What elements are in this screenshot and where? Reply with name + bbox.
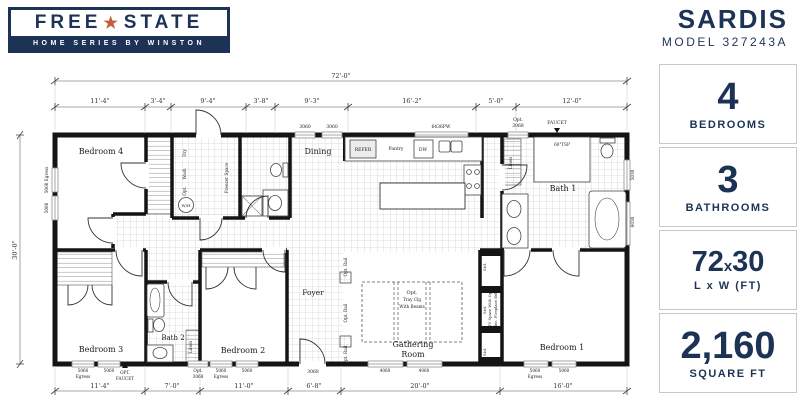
room-label-bath2: Bath 2 xyxy=(161,334,184,342)
opt-faucet-label-1: OPT. xyxy=(120,370,130,375)
room-label-bedroom3: Bedroom 3 xyxy=(79,345,123,354)
tsp-label: 60"TSP xyxy=(554,142,570,147)
bedrooms-value: 4 xyxy=(717,78,738,116)
column xyxy=(340,336,351,347)
svg-text:7'-0": 7'-0" xyxy=(164,382,179,390)
room-label-gathering-2: Room xyxy=(401,350,425,359)
opt-door-top-2: 3068 xyxy=(512,123,524,129)
room-label-bath1: Bath 1 xyxy=(550,184,577,193)
vanity-sink xyxy=(507,201,521,218)
opt-rail-label: Opt. Rail xyxy=(343,303,348,323)
logo-text-free: FREE xyxy=(35,12,102,34)
toilet-bowl xyxy=(271,164,282,177)
std-label: Std. xyxy=(482,348,487,356)
opt-label: Opt. xyxy=(182,186,187,195)
svg-text:9'-4": 9'-4" xyxy=(200,97,215,105)
dry-label: Dry xyxy=(182,149,187,157)
svg-text:3060: 3060 xyxy=(326,124,338,130)
svg-text:Egress: Egress xyxy=(214,374,229,379)
svg-text:5060: 5060 xyxy=(78,368,89,373)
svg-text:5060: 5060 xyxy=(104,368,115,373)
dw-label: DW xyxy=(419,147,428,153)
burner xyxy=(467,170,472,175)
faucet-label: FAUCET xyxy=(547,120,567,126)
burner xyxy=(475,184,480,189)
water-heater-label: W/H xyxy=(182,203,191,208)
stat-bathrooms: 3 BATHROOMS xyxy=(659,147,797,227)
toilet-bowl xyxy=(601,144,613,158)
vanity-sink xyxy=(507,228,521,245)
opt-faucet-label-2: FAUCET xyxy=(116,376,134,381)
tv-niche-label-1: TV Space With Opt. xyxy=(487,289,492,327)
logo-text-state: STATE xyxy=(124,12,203,34)
dimensions-label: L x W (FT) xyxy=(694,280,762,292)
svg-text:9'-3": 9'-3" xyxy=(304,97,319,105)
svg-text:16'-0": 16'-0" xyxy=(553,382,572,390)
page: { "brand": { "line1_left": "FREE", "line… xyxy=(0,0,800,405)
stat-bedrooms: 4 BEDROOMS xyxy=(659,64,797,144)
pantry-label: Pantry xyxy=(389,146,404,152)
dimensions-length: 72 xyxy=(692,246,724,278)
vanity-sink xyxy=(269,196,282,211)
opt-rail-label: Opt. Rail xyxy=(343,257,348,277)
toilet-tank xyxy=(283,163,288,177)
svg-text:16'-2": 16'-2" xyxy=(402,97,421,105)
opt-door-top-1: Opt. xyxy=(513,117,523,123)
sink-basin xyxy=(451,141,462,152)
svg-text:Egress: Egress xyxy=(528,374,543,379)
kitchen-island xyxy=(380,183,465,209)
stats-sidebar: 4 BEDROOMS 3 BATHROOMS 72x30 L x W (FT) … xyxy=(659,64,797,396)
svg-text:5060: 5060 xyxy=(44,202,49,213)
vanity-sink xyxy=(153,348,167,359)
tv-niche-label-2: Elec. Fireplace Below xyxy=(493,286,498,329)
opt-door-bottom-2: 3068 xyxy=(193,374,204,379)
room-label-dining: Dining xyxy=(305,147,332,156)
burner xyxy=(475,170,480,175)
svg-text:6436PW: 6436PW xyxy=(431,124,450,130)
tray-label-1: Opt. xyxy=(407,290,418,296)
opt-rail-label: Opt. Rail xyxy=(343,345,348,365)
room-label-gathering-1: Gathering xyxy=(393,340,434,349)
dimensions-value: 72x30 xyxy=(692,248,765,277)
logo-tagline: HOME SERIES BY WINSTON xyxy=(11,36,227,50)
tub-basin xyxy=(150,288,160,312)
room-label-bedroom1: Bedroom 1 xyxy=(540,343,584,352)
svg-text:3'-4": 3'-4" xyxy=(150,97,165,105)
tub-basin xyxy=(595,198,619,240)
toilet-tank xyxy=(148,319,153,332)
room-label-bedroom4: Bedroom 4 xyxy=(79,147,123,156)
svg-text:5'-0": 5'-0" xyxy=(488,97,503,105)
stat-dimensions: 72x30 L x W (FT) xyxy=(659,230,797,310)
svg-text:5060: 5060 xyxy=(530,368,541,373)
logo-wordmark: FREE ★ STATE xyxy=(11,10,227,36)
range xyxy=(464,165,481,195)
sqft-label: SQUARE FT xyxy=(689,368,766,380)
room-label-bedroom2: Bedroom 2 xyxy=(221,346,265,355)
dim-overall-height: 30'-0" xyxy=(11,240,19,259)
dimensions-x: x xyxy=(724,258,732,275)
toilet-bowl xyxy=(154,319,165,332)
toilet-tank xyxy=(600,138,615,143)
model-title-block: SARDIS MODEL 327243A xyxy=(662,5,788,49)
burner xyxy=(467,184,472,189)
wash-label: Wash xyxy=(182,168,187,180)
svg-text:11'-4": 11'-4" xyxy=(90,382,109,390)
svg-text:4060: 4060 xyxy=(380,368,391,373)
svg-text:5060: 5060 xyxy=(216,368,227,373)
bedrooms-label: BEDROOMS xyxy=(690,119,767,131)
svg-text:5030: 5030 xyxy=(630,169,635,180)
svg-text:5060 Egress: 5060 Egress xyxy=(44,167,49,194)
entry-door-label: 3068 xyxy=(307,369,319,375)
svg-text:Egress: Egress xyxy=(76,374,91,379)
svg-text:6030: 6030 xyxy=(630,216,635,227)
gathering-options xyxy=(340,272,462,347)
svg-text:3060: 3060 xyxy=(299,124,311,130)
model-name: SARDIS xyxy=(662,5,788,35)
bathrooms-value: 3 xyxy=(717,161,738,199)
svg-text:11'-0": 11'-0" xyxy=(234,382,253,390)
svg-text:5060: 5060 xyxy=(559,368,570,373)
opt-door-bottom-1: Opt. xyxy=(193,368,202,373)
star-icon: ★ xyxy=(103,13,121,33)
std-label: Std. xyxy=(482,263,487,271)
svg-text:3'-8": 3'-8" xyxy=(253,97,268,105)
svg-text:12'-0": 12'-0" xyxy=(562,97,581,105)
svg-text:5060: 5060 xyxy=(242,368,253,373)
room-label-foyer: Foyer xyxy=(302,288,324,297)
tray-label-2: Tray Clg xyxy=(403,297,422,302)
stat-sqft: 2,160 SQUARE FT xyxy=(659,313,797,393)
svg-text:11'-4": 11'-4" xyxy=(90,97,109,105)
svg-text:4060: 4060 xyxy=(419,368,430,373)
dimensions-width: 30 xyxy=(732,246,764,278)
svg-text:6'-8": 6'-8" xyxy=(306,382,321,390)
bathrooms-label: BATHROOMS xyxy=(686,202,771,214)
freestate-logo: FREE ★ STATE HOME SERIES BY WINSTON xyxy=(8,7,230,53)
linen-label: Linen xyxy=(508,157,513,169)
sink-basin xyxy=(439,141,450,152)
freezer-label: Freezer Space xyxy=(224,162,229,193)
svg-text:20'-0": 20'-0" xyxy=(410,382,429,390)
tray-label-3: With Beams xyxy=(399,304,424,309)
model-code: MODEL 327243A xyxy=(662,35,788,49)
refer-label: REFER xyxy=(355,147,372,153)
dim-overall-width: 72'-0" xyxy=(331,72,350,80)
sqft-value: 2,160 xyxy=(680,327,775,365)
linen-label: Linen xyxy=(188,341,193,353)
